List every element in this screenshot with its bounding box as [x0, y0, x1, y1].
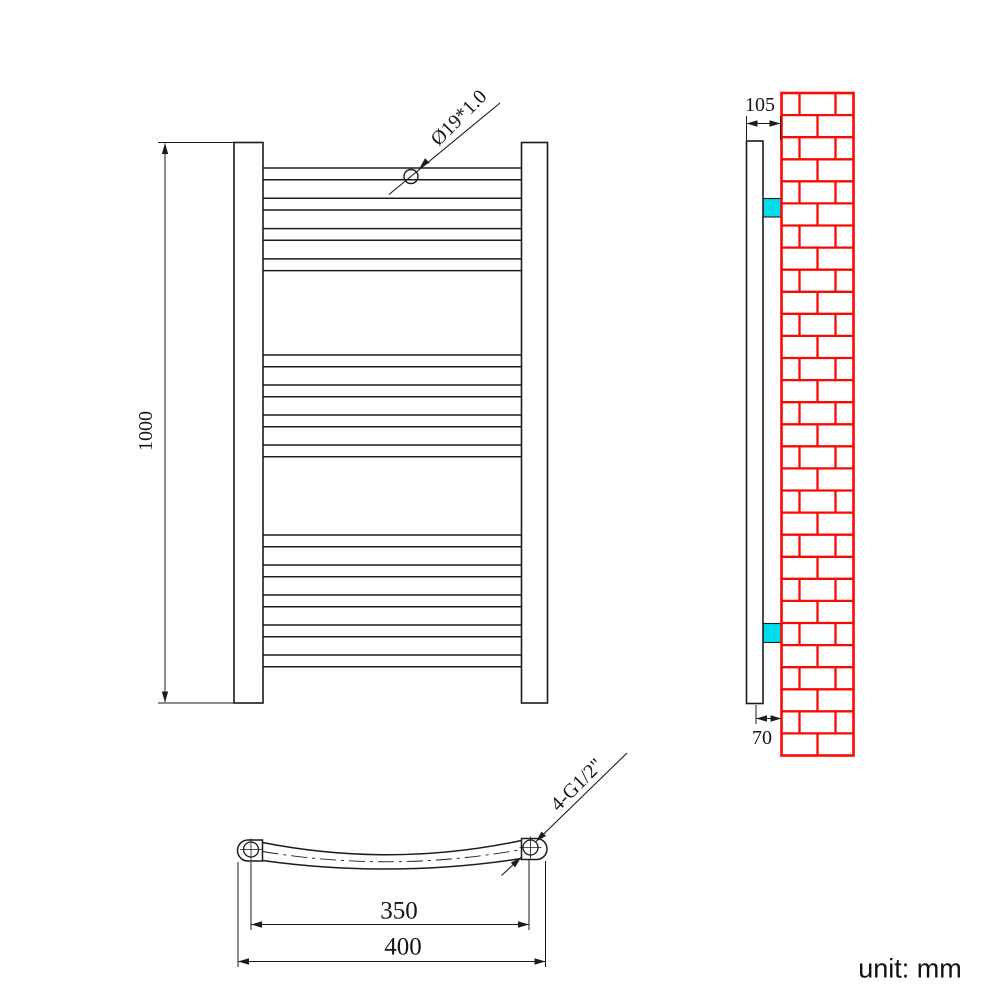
- side-profile-bar: [747, 141, 764, 704]
- radiator-bar: [263, 229, 522, 241]
- arrowhead: [162, 143, 168, 154]
- height-dimension: [158, 143, 238, 704]
- radiator-bar: [263, 259, 522, 271]
- radiator-bar: [263, 565, 522, 577]
- width-dimension-label: 400: [384, 935, 422, 960]
- height-dimension-label: 1000: [136, 411, 156, 451]
- wall-bracket-bottom: [763, 624, 782, 643]
- tube-top-edge: [263, 841, 522, 855]
- arrowhead: [756, 715, 767, 721]
- arrowhead: [162, 692, 168, 703]
- crossbars: [263, 168, 522, 667]
- arrowhead: [518, 921, 529, 927]
- depth-dimension-label: 105: [745, 95, 775, 115]
- thread-leader: [502, 753, 628, 876]
- unit-note: unit: mm: [858, 956, 962, 983]
- radiator-bar: [263, 385, 522, 397]
- radiator-bar: [263, 415, 522, 427]
- brick-wall: [782, 93, 854, 756]
- bracket-dimension: [756, 705, 782, 724]
- left-rail: [234, 143, 263, 704]
- arrowhead: [771, 715, 782, 721]
- front-view: [158, 103, 548, 703]
- bracket-dimension-label: 70: [752, 728, 772, 748]
- right-rail: [522, 143, 548, 704]
- centres-dimension-label: 350: [380, 899, 418, 924]
- radiator-bar: [263, 595, 522, 607]
- arrowhead: [770, 120, 781, 126]
- tube-bottom-edge: [263, 859, 522, 870]
- drawing-canvas: [0, 0, 1001, 1001]
- side-view: [747, 93, 854, 756]
- radiator-bar: [263, 355, 522, 367]
- arrowhead: [251, 921, 262, 927]
- arrowhead: [535, 958, 546, 964]
- radiator-bar: [263, 445, 522, 457]
- radiator-bar: [263, 655, 522, 667]
- depth-dimension: [747, 116, 781, 140]
- wall-bracket-top: [763, 199, 782, 218]
- radiator-bar: [263, 168, 522, 180]
- arrowhead: [747, 120, 758, 126]
- radiator-bar: [263, 198, 522, 210]
- radiator-bar: [263, 535, 522, 547]
- tube-center-line: [263, 850, 522, 862]
- radiator-bar: [263, 625, 522, 637]
- height-extension-lines: [158, 143, 238, 704]
- depth-extension-lines: [747, 116, 781, 140]
- arrowhead: [238, 958, 249, 964]
- technical-drawing-page: 1000 Ø19*1.0 105 70 350 400 4-G1/2" unit…: [0, 0, 1001, 1001]
